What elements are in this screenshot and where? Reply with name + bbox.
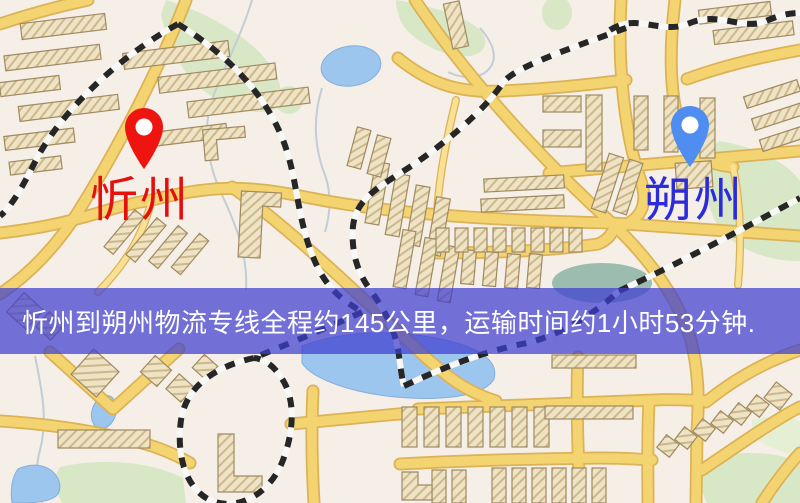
map-background: [0, 0, 800, 503]
origin-label: 忻州: [90, 177, 190, 225]
map-image: 忻州到朔州物流专线全程约145公里，运输时间约1小时53分钟. 忻州 朔州: [0, 0, 800, 503]
map-pin-icon: [120, 106, 168, 170]
origin-pin[interactable]: [120, 106, 168, 170]
route-info-banner: 忻州到朔州物流专线全程约145公里，运输时间约1小时53分钟.: [0, 288, 800, 354]
destination-pin[interactable]: [666, 104, 714, 168]
destination-label: 朔州: [644, 177, 744, 225]
map-pin-icon: [666, 104, 714, 168]
route-info-text: 忻州到朔州物流专线全程约145公里，运输时间约1小时53分钟.: [22, 303, 755, 340]
